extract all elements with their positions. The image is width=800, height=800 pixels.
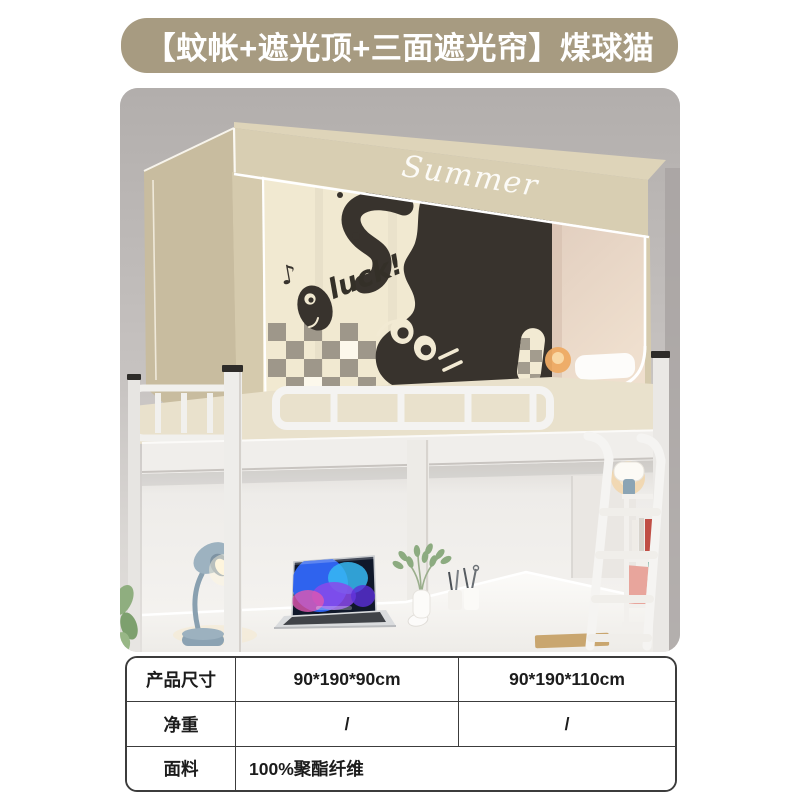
spec-label-size: 产品尺寸: [127, 658, 236, 702]
product-scene: Summer ♪: [120, 88, 680, 652]
post-cap: [651, 351, 670, 358]
spec-weight-value-1: /: [236, 702, 459, 747]
pillow: [574, 352, 635, 380]
pen-cup: [464, 588, 479, 610]
spec-size-option-2: 90*190*110cm: [459, 658, 675, 702]
post-cap: [222, 365, 243, 372]
ink-dot: [337, 192, 343, 198]
post-cap: [127, 374, 141, 380]
vase: [413, 590, 430, 618]
spec-fabric-value: 100%聚酯纤维: [236, 747, 675, 790]
spec-table: 产品尺寸 90*190*90cm 90*190*110cm 净重 / / 面料 …: [125, 656, 677, 792]
shelf-lamp-base: [623, 479, 635, 496]
product-image: Summer ♪: [120, 88, 680, 652]
shelf-lamp-shade: [614, 462, 644, 481]
spec-label-fabric: 面料: [127, 747, 236, 790]
pen-cup: [448, 590, 462, 610]
warm-lamp-glow: [552, 352, 564, 364]
product-title-banner: 【蚊帐+遮光顶+三面遮光帘】煤球猫: [121, 18, 678, 73]
spec-size-option-1: 90*190*90cm: [236, 658, 459, 702]
spec-weight-value-2: /: [459, 702, 675, 747]
left-post: [128, 378, 140, 652]
ink-dot: [352, 232, 360, 240]
spec-label-weight: 净重: [127, 702, 236, 747]
product-title: 【蚊帐+遮光顶+三面遮光帘】煤球猫: [145, 23, 655, 68]
